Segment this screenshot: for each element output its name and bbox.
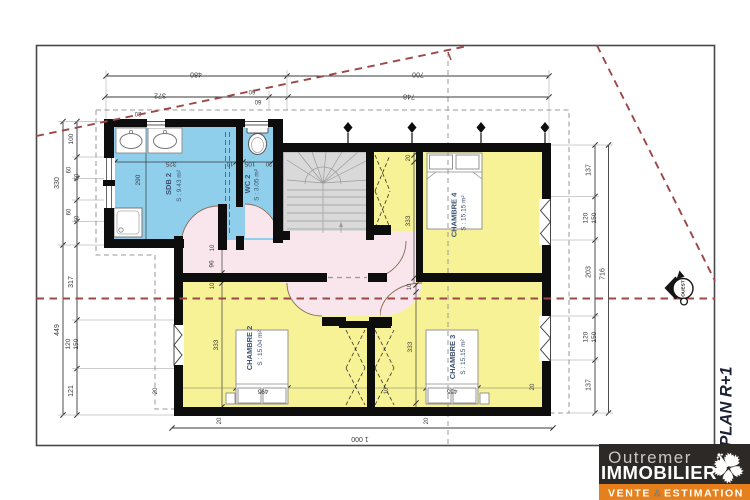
svg-text:203: 203 bbox=[586, 266, 593, 278]
svg-text:S : 15.15 m²: S : 15.15 m² bbox=[460, 338, 467, 374]
svg-text:60: 60 bbox=[75, 173, 81, 180]
svg-text:CHAMBRE 4: CHAMBRE 4 bbox=[450, 192, 459, 237]
svg-text:137: 137 bbox=[586, 379, 593, 391]
svg-text:10: 10 bbox=[384, 387, 390, 394]
svg-text:325: 325 bbox=[165, 160, 176, 167]
svg-text:60: 60 bbox=[67, 166, 73, 173]
svg-text:S : 15.04 m²: S : 15.04 m² bbox=[257, 329, 264, 365]
svg-text:150: 150 bbox=[591, 331, 598, 342]
svg-text:WC 2: WC 2 bbox=[243, 175, 252, 194]
svg-text:372: 372 bbox=[154, 92, 166, 99]
svg-text:330: 330 bbox=[54, 177, 61, 189]
svg-text:333: 333 bbox=[405, 215, 412, 226]
svg-text:CHAMBRE 3: CHAMBRE 3 bbox=[448, 335, 457, 380]
svg-text:100: 100 bbox=[68, 133, 75, 144]
svg-text:10: 10 bbox=[226, 160, 233, 166]
svg-text:S : 9.43 m²: S : 9.43 m² bbox=[176, 169, 183, 202]
svg-text:VENTE: VENTE bbox=[608, 487, 651, 499]
svg-text:333: 333 bbox=[213, 339, 220, 350]
svg-text:OUEST: OUEST bbox=[681, 280, 687, 297]
svg-text:700: 700 bbox=[412, 71, 424, 78]
svg-text:480: 480 bbox=[190, 71, 202, 78]
svg-text:120: 120 bbox=[65, 338, 72, 349]
svg-text:20: 20 bbox=[217, 417, 223, 424]
svg-text:60: 60 bbox=[75, 215, 81, 222]
svg-text:10: 10 bbox=[210, 244, 216, 251]
svg-text:150: 150 bbox=[73, 338, 80, 349]
svg-text:105: 105 bbox=[244, 160, 255, 167]
svg-text:495: 495 bbox=[257, 388, 268, 395]
svg-text:120: 120 bbox=[583, 212, 590, 223]
svg-text:20: 20 bbox=[530, 383, 536, 390]
svg-text:SDB 2: SDB 2 bbox=[164, 173, 173, 195]
svg-text:60: 60 bbox=[254, 98, 261, 104]
svg-text:333: 333 bbox=[407, 341, 414, 352]
svg-text:449: 449 bbox=[54, 324, 61, 336]
svg-text:S : 3.05 m²: S : 3.05 m² bbox=[254, 168, 261, 201]
svg-text:150: 150 bbox=[591, 212, 598, 223]
svg-text:S : 15.15 m²: S : 15.15 m² bbox=[461, 194, 468, 230]
svg-text:PLAN R+1: PLAN R+1 bbox=[718, 366, 736, 446]
svg-text:748: 748 bbox=[403, 93, 415, 100]
svg-text:120: 120 bbox=[583, 331, 590, 342]
svg-text:20: 20 bbox=[424, 417, 430, 424]
svg-text:20: 20 bbox=[153, 387, 159, 394]
svg-text:IMMOBILIER: IMMOBILIER bbox=[601, 462, 717, 483]
svg-text:716: 716 bbox=[600, 268, 607, 280]
svg-text:20: 20 bbox=[406, 154, 412, 161]
svg-text:1 000: 1 000 bbox=[351, 435, 369, 442]
svg-text:10: 10 bbox=[407, 283, 413, 290]
svg-text:10: 10 bbox=[210, 282, 216, 289]
svg-text:ESTIMATION: ESTIMATION bbox=[664, 487, 744, 499]
svg-text:455: 455 bbox=[446, 388, 457, 395]
svg-text:121: 121 bbox=[68, 385, 75, 397]
svg-text:&: & bbox=[654, 487, 662, 499]
svg-text:290: 290 bbox=[135, 174, 142, 185]
svg-text:96: 96 bbox=[209, 260, 216, 268]
svg-text:20: 20 bbox=[265, 160, 272, 166]
svg-text:317: 317 bbox=[68, 276, 75, 288]
svg-text:CHAMBRE 2: CHAMBRE 2 bbox=[245, 326, 254, 371]
svg-text:60: 60 bbox=[67, 208, 73, 215]
svg-text:137: 137 bbox=[586, 164, 593, 176]
